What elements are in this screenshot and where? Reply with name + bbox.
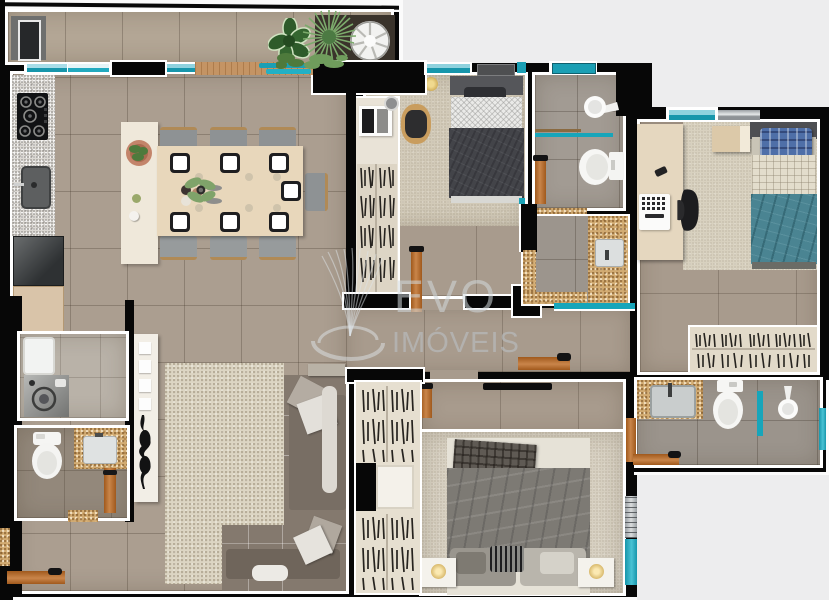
svg-text:EVO: EVO [394, 271, 498, 322]
svg-text:IMÓVEIS: IMÓVEIS [392, 326, 520, 359]
